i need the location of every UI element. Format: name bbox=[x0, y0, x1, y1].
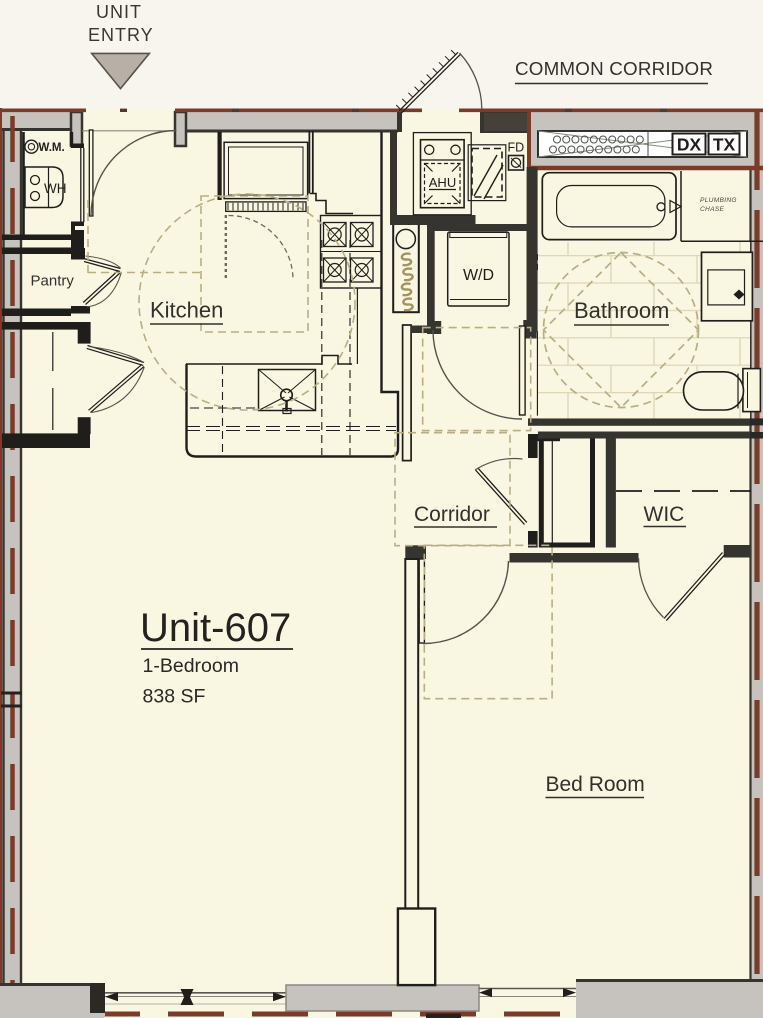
svg-text:AHU: AHU bbox=[429, 175, 456, 190]
svg-text:CHASE: CHASE bbox=[700, 206, 725, 213]
svg-text:Bathroom: Bathroom bbox=[574, 298, 669, 323]
svg-text:838 SF: 838 SF bbox=[143, 686, 206, 708]
svg-text:Corridor: Corridor bbox=[414, 503, 490, 526]
svg-text:FD: FD bbox=[508, 141, 525, 155]
svg-text:Bed Room: Bed Room bbox=[546, 773, 645, 796]
svg-text:WIC: WIC bbox=[644, 503, 685, 526]
svg-text:UNIT: UNIT bbox=[96, 2, 142, 22]
svg-text:DX: DX bbox=[677, 135, 702, 155]
svg-text:W.M.: W.M. bbox=[39, 142, 65, 154]
svg-text:Unit-607: Unit-607 bbox=[140, 606, 291, 650]
svg-text:W/D: W/D bbox=[463, 267, 494, 284]
svg-text:WH: WH bbox=[44, 181, 67, 196]
svg-text:PLUMBING: PLUMBING bbox=[700, 197, 737, 204]
svg-text:ENTRY: ENTRY bbox=[88, 25, 154, 45]
svg-text:1-Bedroom: 1-Bedroom bbox=[143, 655, 239, 677]
svg-text:COMMON CORRIDOR: COMMON CORRIDOR bbox=[515, 58, 713, 79]
svg-text:Kitchen: Kitchen bbox=[150, 298, 223, 323]
svg-text:TX: TX bbox=[713, 135, 736, 155]
svg-text:Pantry: Pantry bbox=[31, 273, 75, 290]
